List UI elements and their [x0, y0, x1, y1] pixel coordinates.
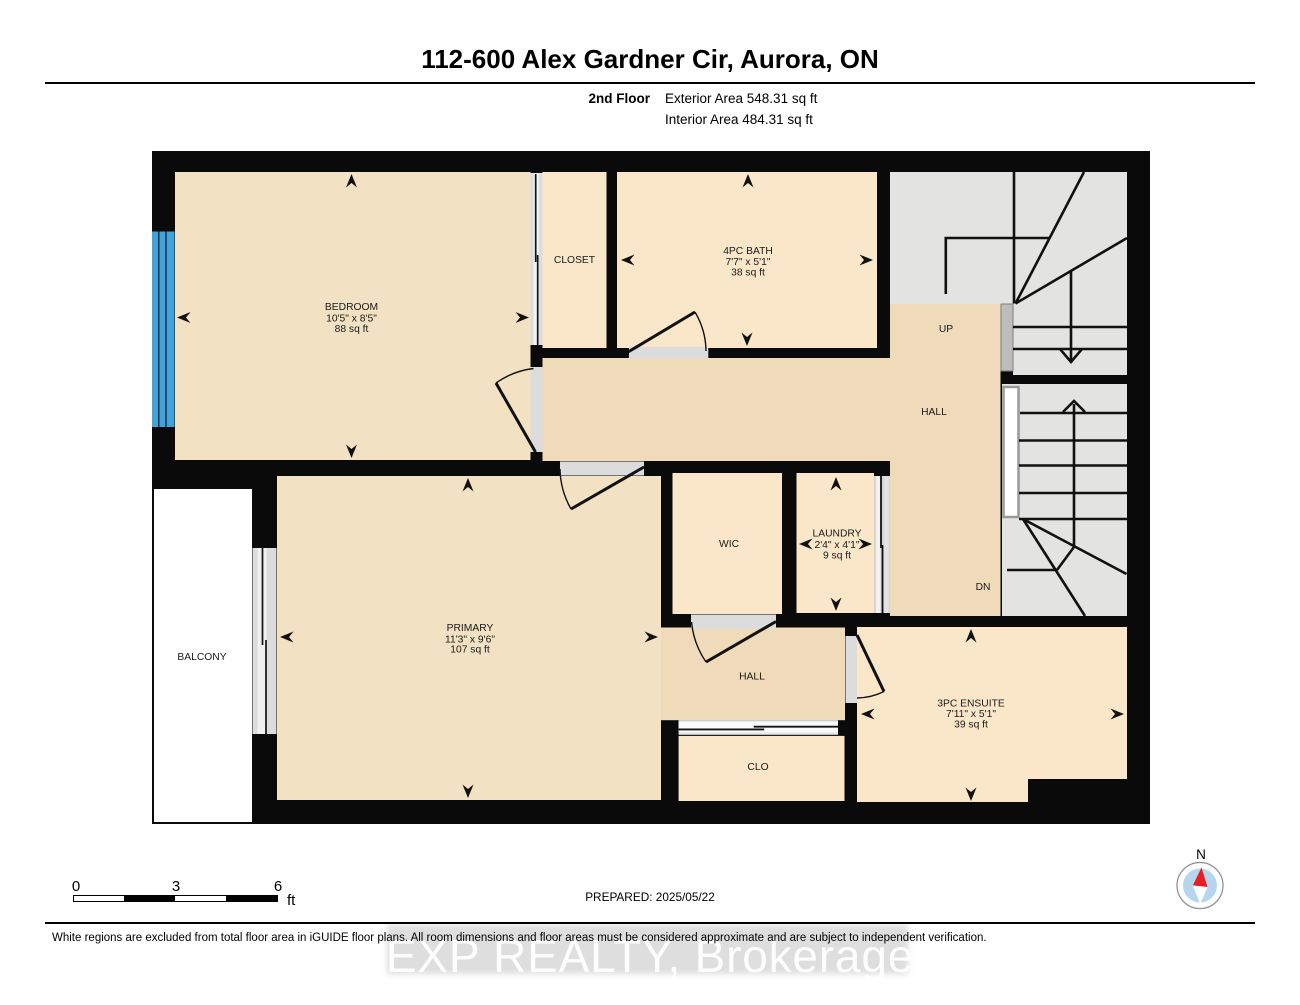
svg-text:PRIMARY: PRIMARY: [447, 623, 494, 634]
svg-text:38 sq ft: 38 sq ft: [731, 268, 765, 279]
svg-text:BEDROOM: BEDROOM: [325, 302, 378, 313]
svg-text:BALCONY: BALCONY: [177, 652, 226, 663]
svg-text:LAUNDRY: LAUNDRY: [812, 529, 861, 540]
svg-text:N: N: [1196, 847, 1206, 862]
svg-text:DN: DN: [976, 582, 991, 593]
svg-text:3PC ENSUITE: 3PC ENSUITE: [937, 699, 1005, 710]
svg-text:CLOSET: CLOSET: [554, 255, 596, 266]
svg-text:HALL: HALL: [921, 407, 947, 418]
svg-text:4PC BATH: 4PC BATH: [723, 246, 773, 257]
svg-text:7'11" x 5'1": 7'11" x 5'1": [946, 709, 996, 720]
svg-text:88 sq ft: 88 sq ft: [335, 324, 369, 335]
svg-text:39 sq ft: 39 sq ft: [954, 720, 988, 731]
svg-text:107 sq ft: 107 sq ft: [450, 645, 490, 656]
svg-text:UP: UP: [939, 324, 953, 335]
svg-text:HALL: HALL: [739, 672, 765, 683]
svg-text:2'4" x 4'1": 2'4" x 4'1": [814, 540, 859, 551]
svg-text:WIC: WIC: [719, 539, 740, 550]
svg-text:CLO: CLO: [747, 762, 768, 773]
svg-text:7'7" x 5'1": 7'7" x 5'1": [725, 257, 770, 268]
svg-text:9 sq ft: 9 sq ft: [823, 551, 851, 562]
svg-text:10'5" x 8'5": 10'5" x 8'5": [326, 314, 377, 325]
